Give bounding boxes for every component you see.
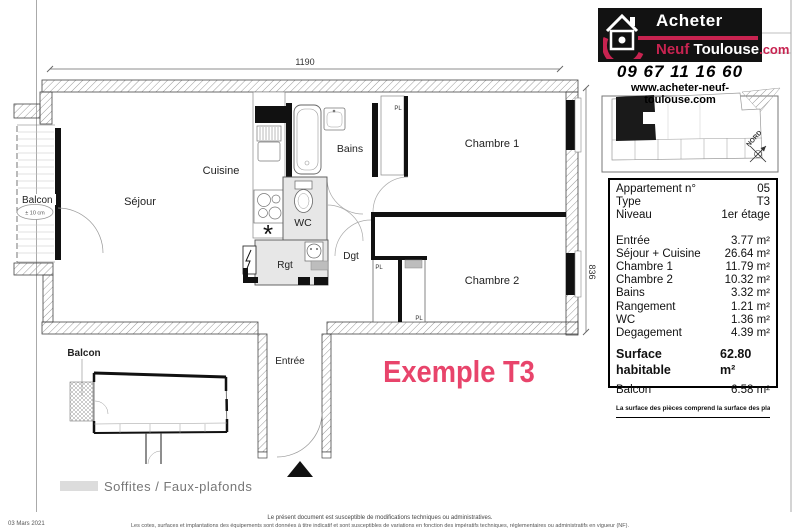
row-value: 1.36 m² xyxy=(731,314,770,327)
panel-row-level: Niveau1er étage xyxy=(616,209,770,222)
rangement-room: Rgt xyxy=(255,240,328,285)
panel-row-area: Séjour + Cuisine26.64 m² xyxy=(616,248,770,261)
logo-text-neuf: Neuf xyxy=(656,41,689,58)
room-label-cuisine: Cuisine xyxy=(203,165,240,177)
closet-label-pl1: PL xyxy=(394,106,402,112)
footer-date: 03 Mars 2021 xyxy=(8,521,45,527)
electrical-panel xyxy=(243,246,258,283)
dimension-height: 836 xyxy=(583,85,597,335)
legend-label: Soffites / Faux-plafonds xyxy=(104,479,252,494)
soffit-patch xyxy=(311,261,328,270)
dimension-width-label: 1190 xyxy=(295,57,314,67)
bathtub xyxy=(294,105,321,174)
wall-ch1-ch2 xyxy=(371,212,566,217)
room-label-sejour: Séjour xyxy=(124,196,156,208)
window-chambre1 xyxy=(566,100,575,150)
dimension-width: 1190 xyxy=(47,57,563,72)
row-label: Type xyxy=(616,196,641,209)
panel-row-area: WC1.36 m² xyxy=(616,314,770,327)
row-label: Bains xyxy=(616,287,645,300)
wall-stub-topleft xyxy=(40,92,52,124)
logo-text-com: .com xyxy=(759,42,789,57)
logo: Acheter Neuf Toulouse.com xyxy=(598,8,762,62)
mini-plan-balcon-label: Balcon xyxy=(67,348,100,359)
row-label: Chambre 1 xyxy=(616,261,673,274)
panel-row-area: Chambre 210.32 m² xyxy=(616,274,770,287)
entry-door-arc xyxy=(277,412,322,457)
wc-door-arc xyxy=(327,205,363,241)
room-label-entree: Entrée xyxy=(275,356,305,367)
panel-row-area: Chambre 111.79 m² xyxy=(616,261,770,274)
row-label: Rangement xyxy=(616,301,675,314)
chambre2-closets: PL PL xyxy=(371,256,427,322)
panel-row-area: Bains3.32 m² xyxy=(616,287,770,300)
bains-door-arc xyxy=(327,178,363,214)
wall-neighbor-top xyxy=(14,104,40,118)
entry: Entrée xyxy=(275,356,322,477)
row-label: Surface habitable xyxy=(616,346,720,378)
logo-text-toulouse: Toulouse xyxy=(694,41,760,58)
legend-swatch xyxy=(60,481,98,491)
row-value: 26.64 m² xyxy=(725,248,770,261)
room-label-rgt: Rgt xyxy=(277,260,293,271)
row-label: Niveau xyxy=(616,209,652,222)
panel-row-area: Degagement4.39 m² xyxy=(616,327,770,340)
room-label-dgt: Dgt xyxy=(343,251,359,262)
closet-label-pl2: PL xyxy=(375,265,383,271)
wall-neighbor-side xyxy=(43,275,53,322)
balcony-door-arc xyxy=(58,208,103,253)
window-chambre2 xyxy=(566,253,575,295)
toilet xyxy=(295,190,313,213)
panel-row-type: TypeT3 xyxy=(616,196,770,209)
wall-cuisine-bains xyxy=(286,103,292,177)
window-sill-1 xyxy=(575,98,581,152)
row-value: 3.32 m² xyxy=(731,287,770,300)
panel-row-area: Rangement1.21 m² xyxy=(616,301,770,314)
logo-red-bar xyxy=(638,36,758,40)
entry-arrow-icon xyxy=(287,461,313,477)
soffit-patch xyxy=(405,260,422,268)
row-value: 3.77 m² xyxy=(731,235,770,248)
logo-text-acheter: Acheter xyxy=(656,11,723,31)
panel-row-balcony: Balcon6.58 m² xyxy=(616,384,770,397)
row-label: Degagement xyxy=(616,327,682,340)
row-value: 6.58 m² xyxy=(731,384,770,397)
wall-bottom-left xyxy=(42,322,258,334)
door-jambs xyxy=(258,452,331,458)
wall-dgt-ch2 xyxy=(371,217,375,256)
row-label: Balcon xyxy=(616,384,651,397)
row-value: 1.21 m² xyxy=(731,301,770,314)
wall-bains-right xyxy=(372,103,378,177)
row-label: Appartement n° xyxy=(616,183,696,196)
footer-disclaimer-2: Les cotes, surfaces et implantations des… xyxy=(70,523,690,529)
mini-plan: Balcon xyxy=(67,348,227,464)
phone-number: 09 67 11 16 60 xyxy=(596,62,764,82)
wall-corridor-left xyxy=(258,334,267,452)
logo-house-icon xyxy=(603,11,645,59)
panel-row-apartment: Appartement n°05 xyxy=(616,183,770,196)
kitchen-duct xyxy=(255,106,288,123)
footer-disclaimer-1: Le présent document est susceptible de m… xyxy=(100,515,660,521)
chambre1-door-arc xyxy=(373,177,408,212)
wall-top xyxy=(42,80,578,92)
closet-label-pl3: PL xyxy=(415,316,423,322)
room-label-bains: Bains xyxy=(337,143,363,155)
dimension-height-label: 836 xyxy=(587,264,597,279)
mini-plan-balcony xyxy=(70,382,93,421)
row-value: 4.39 m² xyxy=(731,327,770,340)
row-value: 1er étage xyxy=(721,209,770,222)
panel-footnote: La surface des pièces comprend la surfac… xyxy=(616,402,770,417)
chambre1-closet: PL xyxy=(381,96,408,177)
row-value: 11.79 m² xyxy=(725,261,770,274)
balcony-note: ± 10 cm xyxy=(25,211,45,217)
room-label-wc: WC xyxy=(294,217,312,229)
row-value: 05 xyxy=(757,183,770,196)
row-value: 62.80 m² xyxy=(720,346,770,378)
wall-bottom-right xyxy=(327,322,578,334)
logo-text-row2: Neuf Toulouse.com xyxy=(656,41,789,58)
wall-neighbor-bottom xyxy=(14,263,53,275)
legend: Soffites / Faux-plafonds xyxy=(60,479,252,494)
flyer-page: 1190 836 xyxy=(0,0,800,529)
row-value: T3 xyxy=(757,196,770,209)
wall-corridor-right xyxy=(322,334,331,452)
row-label: WC xyxy=(616,314,635,327)
room-label-chambre2: Chambre 2 xyxy=(465,275,519,287)
row-label: Séjour + Cuisine xyxy=(616,248,701,261)
row-label: Entrée xyxy=(616,235,650,248)
interior-walls xyxy=(335,177,566,256)
oven xyxy=(258,142,280,161)
room-label-chambre1: Chambre 1 xyxy=(465,138,519,150)
wc-room: WC xyxy=(283,177,363,242)
website-url: www.acheter-neuf-toulouse.com xyxy=(596,82,764,106)
example-t3-label: Exemple T3 xyxy=(382,354,536,390)
row-value: 10.32 m² xyxy=(725,274,770,287)
row-label: Chambre 2 xyxy=(616,274,673,287)
panel-row-total: Surface habitable62.80 m² xyxy=(616,346,770,378)
panel-row-area: Entrée3.77 m² xyxy=(616,235,770,248)
details-panel: Appartement n°05 TypeT3 Niveau1er étage … xyxy=(608,178,778,388)
window-sill-2 xyxy=(575,251,581,297)
